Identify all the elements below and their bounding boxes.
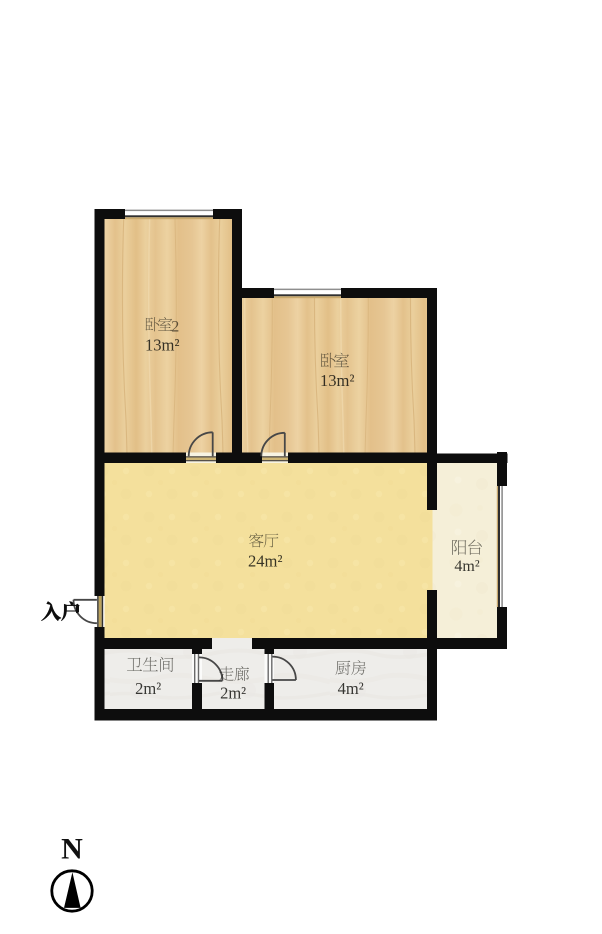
svg-text:13m²: 13m² [320, 371, 355, 390]
svg-text:24m²: 24m² [248, 551, 283, 570]
svg-text:2m²: 2m² [135, 679, 161, 698]
svg-text:4m²: 4m² [454, 558, 479, 575]
svg-text:4m²: 4m² [338, 679, 364, 698]
svg-text:N: N [61, 833, 83, 866]
svg-text:2m²: 2m² [220, 683, 246, 702]
svg-text:2: 2 [171, 318, 179, 335]
svg-text:13m²: 13m² [145, 335, 180, 354]
